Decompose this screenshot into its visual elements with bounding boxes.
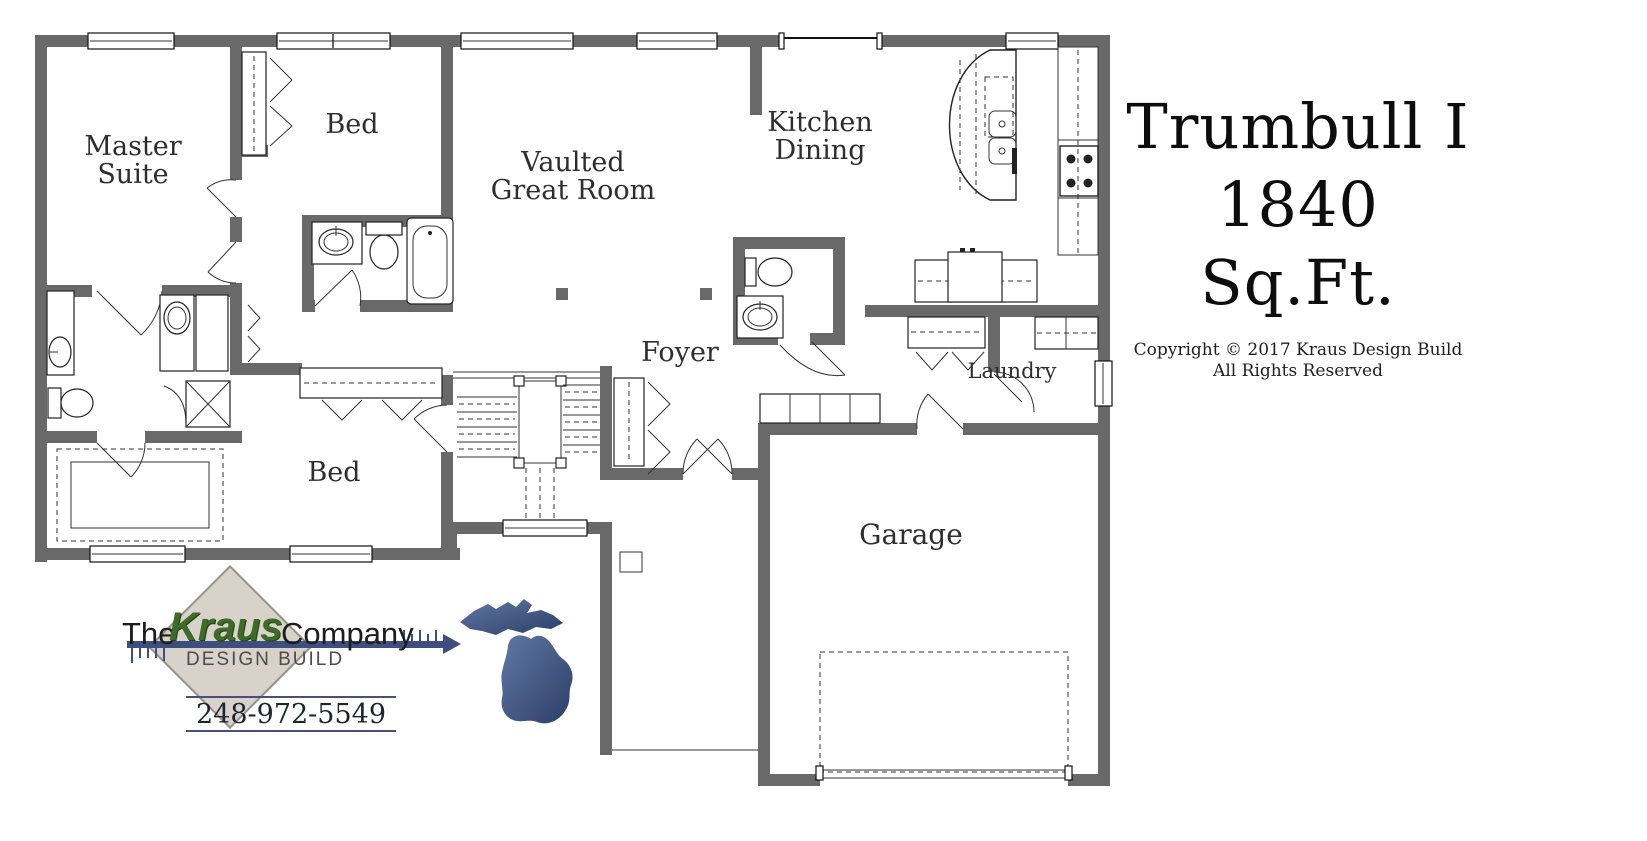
bedroom2-door <box>414 405 447 452</box>
window <box>88 33 174 49</box>
room-label-foyer: Foyer <box>641 337 719 368</box>
logo-text-company: Company <box>281 616 414 652</box>
michigan-state-icon <box>452 590 602 735</box>
bedroom-top-closet <box>242 52 292 155</box>
kitchen-island <box>950 50 1018 200</box>
ruler-tick <box>419 630 421 641</box>
front-porch <box>612 552 758 750</box>
phone-rule-bottom <box>186 730 396 732</box>
room-label-bed-bottom: Bed <box>307 457 360 488</box>
front-door <box>683 439 732 474</box>
kitchen-counter <box>1058 47 1098 255</box>
logo-tagline: DESIGN BUILD <box>186 649 344 671</box>
den-detail <box>57 449 223 541</box>
copyright-line-2: All Rights Reserved <box>1112 361 1484 382</box>
logo-text-the: The <box>122 616 175 652</box>
bath-door <box>315 270 361 306</box>
window <box>1095 361 1112 406</box>
window <box>637 33 717 49</box>
window <box>90 546 185 562</box>
window-double <box>277 33 390 49</box>
room-label-laundry: Laundry <box>968 359 1057 383</box>
ruler-tick <box>427 634 429 641</box>
washer-dryer <box>1035 317 1098 349</box>
phone-number: 248-972-5549 <box>186 699 396 730</box>
room-label-master-1: Master <box>84 131 181 162</box>
garage-entry-door <box>917 394 963 429</box>
den-door <box>97 443 145 477</box>
copyright-line-1: Copyright © 2017 Kraus Design Build <box>1112 340 1484 361</box>
wall-opening <box>779 33 882 49</box>
master-bedroom-door <box>207 180 236 217</box>
room-label-master-2: Suite <box>97 159 168 190</box>
ruler-tick <box>435 630 437 641</box>
floor-plan-sheet: Master Suite Bed Vaulted Great Room Kitc… <box>0 0 1647 841</box>
room-label-garage: Garage <box>859 518 963 551</box>
powder-room-fixtures <box>737 258 792 338</box>
garage-detail <box>816 652 1072 780</box>
room-label-greatroom-2: Great Room <box>491 175 655 206</box>
title-block: Trumbull I 1840 Sq.Ft. Copyright © 2017 … <box>1112 88 1484 382</box>
foyer-closet <box>614 378 670 474</box>
plan-square-footage: 1840 Sq.Ft. <box>1112 166 1484 322</box>
master-bath-door <box>97 291 162 335</box>
powder-door <box>780 342 845 376</box>
room-label-bed-top: Bed <box>325 109 378 140</box>
master-bath-fixtures <box>47 291 260 427</box>
staircase <box>453 372 600 518</box>
room-label-greatroom-1: Vaulted <box>520 147 624 178</box>
hall-bath-fixtures <box>312 218 453 304</box>
kraus-wordmark: Kraus <box>169 605 282 650</box>
window <box>1006 33 1058 49</box>
window <box>461 33 573 49</box>
room-label-kitchen-1: Kitchen <box>767 107 873 138</box>
window <box>503 520 587 536</box>
window <box>290 546 372 562</box>
room-label-kitchen-2: Dining <box>775 135 866 166</box>
bedroom-bottom-closet <box>300 368 442 420</box>
phone-rule-top <box>186 696 396 698</box>
shower-door <box>164 386 186 424</box>
stove-fixture <box>1060 146 1098 196</box>
hall-bath-door <box>208 242 236 283</box>
plan-title: Trumbull I <box>1112 88 1484 166</box>
